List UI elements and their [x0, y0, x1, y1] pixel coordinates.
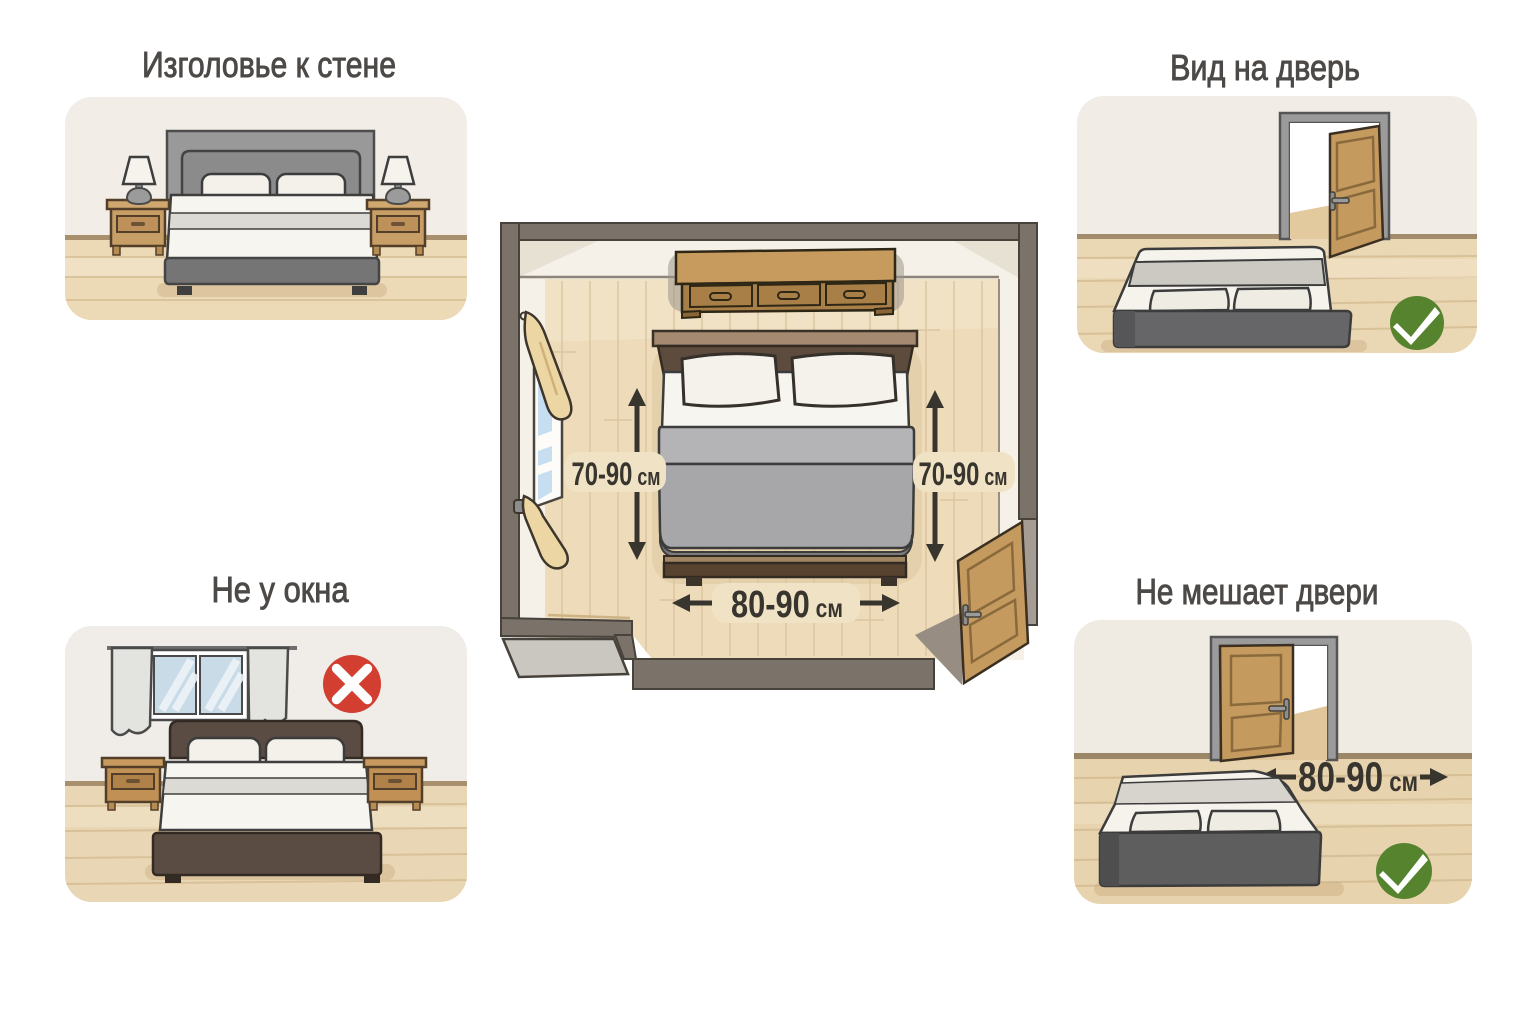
svg-text:Вид на дверь: Вид на дверь: [1170, 47, 1360, 88]
svg-text:Изголовье к стене: Изголовье к стене: [142, 44, 396, 85]
svg-text:Не мешает двери: Не мешает двери: [1136, 571, 1379, 612]
svg-text:Не у окна: Не у окна: [212, 569, 350, 610]
